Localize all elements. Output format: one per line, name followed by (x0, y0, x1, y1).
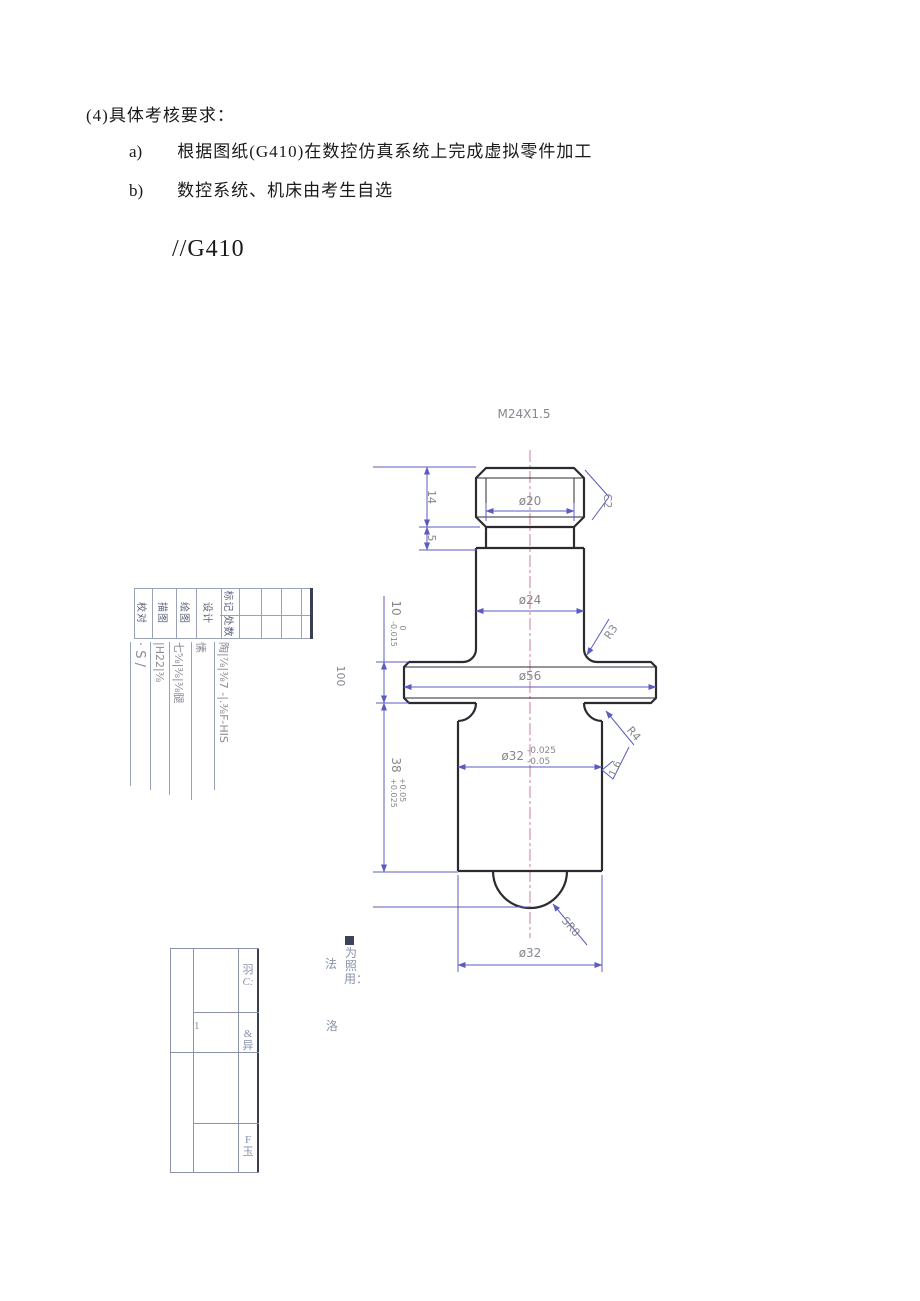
title-block-entry: 七⅝|⅜|⅜腿 (169, 642, 185, 795)
dim-len10-lower: -0.015 (389, 621, 398, 647)
caption-bottom-char: 洛 (326, 1017, 338, 1034)
exam-item-a: a) 根据图纸(G410)在数控仿真系统上完成虚拟零件加工 (129, 137, 592, 162)
title-block-border (311, 588, 314, 639)
title-block-entry: 愫 (191, 642, 207, 800)
dim-len38-upper: +0.05 (398, 778, 407, 803)
title-block-header-right: 处数 (222, 615, 237, 638)
dimension-lines (384, 467, 656, 965)
revision-cell-text: 异 (243, 1040, 254, 1052)
dim-len5: 5 (425, 535, 438, 542)
caption-vertical-text: 为照用： (344, 947, 358, 986)
dim-dia32-upper: -0.025 (527, 746, 556, 756)
title-block-label-trace: 描图 (156, 588, 171, 638)
dim-chamfer-c2: C2 (601, 494, 614, 509)
revision-table-border (257, 948, 259, 1172)
revision-table-line (193, 948, 194, 1172)
revision-table-line (170, 948, 171, 1172)
revision-cell-text: 羽 (243, 964, 254, 976)
caption-square-icon (345, 936, 354, 945)
title-block-line (281, 588, 282, 639)
title-block-line (261, 588, 262, 639)
title-block-header-left: 标记 (222, 588, 237, 615)
title-block-line (176, 588, 177, 639)
dim-fillet-r4: R4 (624, 724, 643, 744)
title-block-line (152, 588, 153, 639)
exam-item-b: b) 数控系统、机床由考生自选 (129, 176, 393, 201)
dim-dia32-bottom: ø32 (519, 946, 542, 960)
title-block-line (301, 588, 302, 639)
leader-lines (553, 470, 634, 945)
revision-table-line (170, 948, 259, 949)
revision-table-line (193, 1123, 259, 1124)
title-block-label-check: 校对 (135, 588, 150, 638)
revision-cell-text: C: (243, 976, 254, 988)
title-block-line (239, 588, 240, 639)
revision-cell: 羽 C: (239, 964, 257, 988)
title-block-entry: 陶|⅞|⅜7 -|.⅜F-HIS (214, 642, 230, 790)
item-a-text: 根据图纸(G410)在数控仿真系统上完成虚拟零件加工 (177, 142, 592, 161)
part-drawing: M24X1.5 ø20 ø24 ø56 ø32 ø32 -0.025 -0.05… (330, 395, 680, 995)
item-b-text: 数控系统、机床由考生自选 (177, 181, 393, 200)
title-block: 标记 处数 设计 绘图 描图 校对 陶|⅞|⅜7 -|.⅜F-HIS 愫 七⅝|… (126, 586, 316, 816)
thread-label: M24X1.5 (498, 407, 551, 421)
figure-code: //G410 (172, 236, 245, 263)
item-b-marker: b) (129, 181, 143, 200)
revision-table-line (193, 1012, 259, 1013)
title-block-entry: · S / (130, 642, 146, 786)
title-block-entry: |H22|⅜ (150, 642, 166, 790)
dim-dia20: ø20 (519, 494, 542, 508)
exam-heading: (4)具体考核要求： (86, 101, 235, 126)
dim-fillet-r3: R3 (602, 622, 621, 641)
document-page: (4)具体考核要求： a) 根据图纸(G410)在数控仿真系统上完成虚拟零件加工… (0, 0, 920, 1301)
dim-len38-main: 38 (389, 757, 403, 772)
title-block-line (135, 638, 313, 639)
revision-cell-text: 玉 (243, 1146, 254, 1158)
dim-len10-upper: 0 (398, 625, 407, 630)
revision-cell: & 异 (239, 1028, 257, 1052)
extension-lines (373, 467, 602, 972)
dim-dia32-main: ø32 (501, 749, 524, 763)
title-block-label-design: 设计 (201, 588, 216, 638)
caption-left-char: 法 (325, 955, 337, 972)
title-block-line (196, 588, 197, 639)
item-a-marker: a) (129, 142, 142, 161)
dim-len10-main: 10 (389, 600, 403, 615)
revision-cell-text: & (244, 1028, 253, 1040)
dim-len38-lower: +0.025 (389, 778, 398, 808)
revision-cell-qty: 1 (194, 1020, 208, 1032)
dim-len14: 14 (425, 490, 438, 504)
dim-dia32-lower: -0.05 (527, 757, 550, 767)
dim-dia24: ø24 (519, 593, 542, 607)
revision-cell: F 玉 (239, 1134, 257, 1158)
title-block-label-draw: 绘图 (178, 588, 193, 638)
revision-table-line (170, 1172, 259, 1173)
revision-table-line (170, 1052, 259, 1053)
dim-dia56: ø56 (519, 669, 542, 683)
revision-cell-text: F (245, 1134, 251, 1146)
dim-len100: 100 (334, 666, 347, 687)
